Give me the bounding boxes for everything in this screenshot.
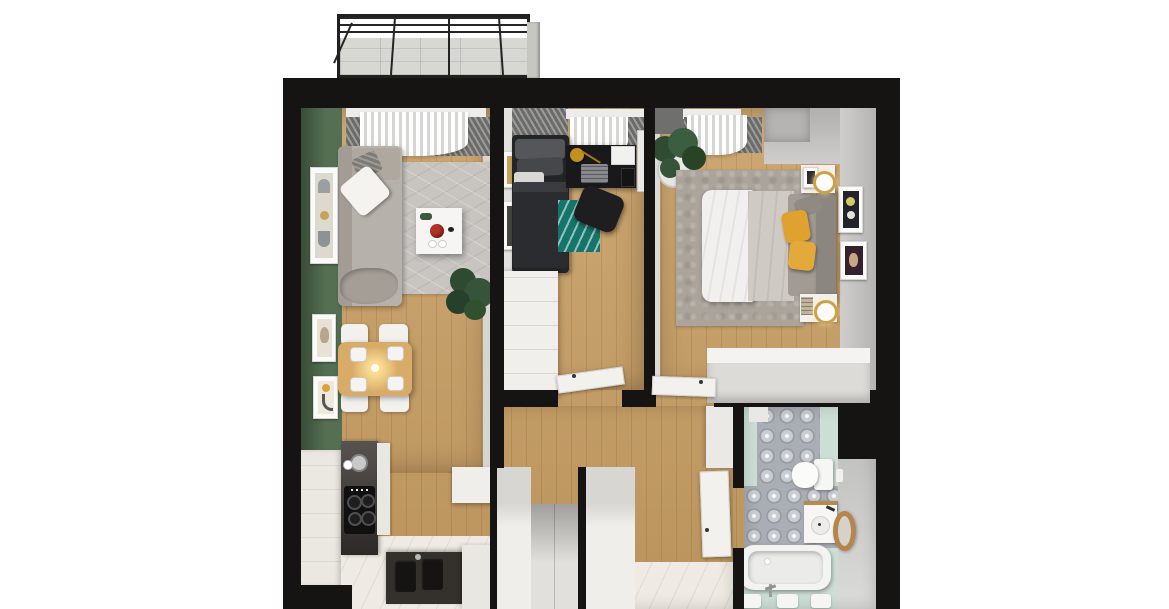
burner-icon — [361, 494, 375, 508]
bedside-lamp-icon — [814, 300, 838, 324]
entry-partition-right — [586, 467, 635, 609]
bedroom-gray-wall-top-recess — [764, 108, 810, 142]
wall-entry-partition-right-edge — [578, 467, 586, 609]
bedroom-poster — [838, 186, 863, 233]
bedside-lamp-icon — [813, 171, 836, 194]
poster-motif — [847, 211, 855, 219]
burner-icon — [348, 512, 362, 526]
hallway-tile-floor — [633, 562, 733, 609]
red-bowl — [430, 224, 444, 238]
wall-entry-partition-left-edge — [490, 467, 497, 609]
balcony-divider-panel — [527, 22, 540, 78]
bathroom-shelf — [749, 406, 768, 422]
cooktop-controls — [351, 489, 369, 491]
yellow-pillow — [781, 209, 812, 244]
yellow-pillow — [787, 240, 816, 272]
table-remote — [448, 227, 454, 232]
sofa-blanket — [340, 268, 398, 304]
bath-mat — [741, 594, 761, 608]
closet-door-seam — [554, 504, 555, 609]
laptop-icon — [581, 164, 608, 183]
wall-smallroom-bedroom — [644, 108, 655, 406]
place-setting — [350, 377, 367, 392]
wall-hall-segment — [490, 390, 558, 407]
duvet-white — [702, 190, 754, 302]
sink-basin — [421, 558, 443, 590]
wall-living-smallroom — [490, 108, 504, 468]
wall-bathroom-block — [838, 395, 876, 459]
poster-motif — [320, 327, 329, 343]
cooktop — [344, 486, 375, 534]
wall-bathroom-left-lower — [733, 548, 744, 609]
wall-top — [283, 78, 900, 108]
wall-bathroom-left-upper — [733, 406, 744, 488]
faucet-icon — [415, 554, 421, 560]
bedroom-door — [652, 376, 717, 397]
balcony-post — [448, 17, 450, 75]
bathroom-door-frame — [706, 406, 733, 468]
smallroom-wardrobe — [500, 271, 558, 398]
wall-right — [876, 108, 900, 609]
poster-arch-motif — [318, 179, 330, 193]
toilet-bowl — [792, 462, 818, 488]
round-wood-mirror — [833, 511, 856, 551]
coffee-cup — [343, 460, 353, 470]
sink-basin — [394, 560, 416, 592]
place-setting — [387, 376, 404, 391]
toilet — [792, 458, 834, 491]
wardrobe-top — [707, 348, 870, 363]
door-handle-icon — [705, 528, 709, 532]
burner-icon — [361, 511, 376, 526]
faucet-icon — [826, 505, 835, 512]
tub-interior — [748, 551, 823, 584]
pendant-lamp-icon — [371, 364, 379, 372]
sink-counter — [386, 552, 464, 604]
entry-partition-left — [497, 467, 531, 609]
bath-mat — [777, 594, 798, 608]
wall-poster-tall — [310, 167, 338, 264]
drain-icon — [765, 559, 770, 564]
poster-swirl-motif — [322, 394, 333, 411]
wall-poster — [313, 376, 338, 419]
poster-dot-motif — [322, 384, 330, 392]
plant-leaves-icon — [682, 146, 706, 170]
nightstand-books — [801, 297, 813, 315]
bathtub — [740, 545, 831, 590]
wardrobe-front — [707, 363, 870, 403]
bath-mat — [811, 594, 831, 608]
door-handle-icon — [699, 380, 703, 384]
plant-leaves-icon — [464, 300, 486, 320]
floor-plant — [446, 266, 496, 322]
place-setting — [387, 346, 404, 361]
coffee-cup — [438, 240, 447, 248]
burner-icon — [347, 495, 362, 510]
place-setting — [350, 347, 367, 362]
floor-plan-canvas — [0, 0, 1169, 609]
poster-motif — [849, 253, 858, 267]
table-plant-icon — [420, 213, 432, 220]
bedroom-poster — [840, 241, 867, 280]
poster-dot-motif — [320, 211, 329, 220]
vanity-sink — [804, 501, 837, 543]
poster-arch-motif — [318, 231, 330, 247]
kitchen-counter-white — [377, 443, 390, 535]
coffee-cup — [428, 240, 437, 248]
wall-left — [283, 108, 301, 609]
wall-poster — [312, 314, 336, 362]
wall-corner-bottom-left — [283, 585, 352, 609]
desk-tablet — [621, 168, 635, 187]
flush-plate — [836, 469, 843, 482]
balcony — [337, 14, 530, 78]
poster-motif — [846, 197, 855, 206]
bedroom-wardrobe — [707, 348, 870, 403]
bed-pillow — [515, 139, 565, 159]
bathroom-door — [700, 471, 732, 558]
double-bed — [700, 188, 836, 302]
kitchen-cabinets — [301, 450, 341, 586]
drain-icon — [818, 523, 821, 526]
door-handle-icon — [572, 374, 576, 378]
entry-closet — [531, 504, 578, 609]
desk-papers — [611, 146, 635, 165]
